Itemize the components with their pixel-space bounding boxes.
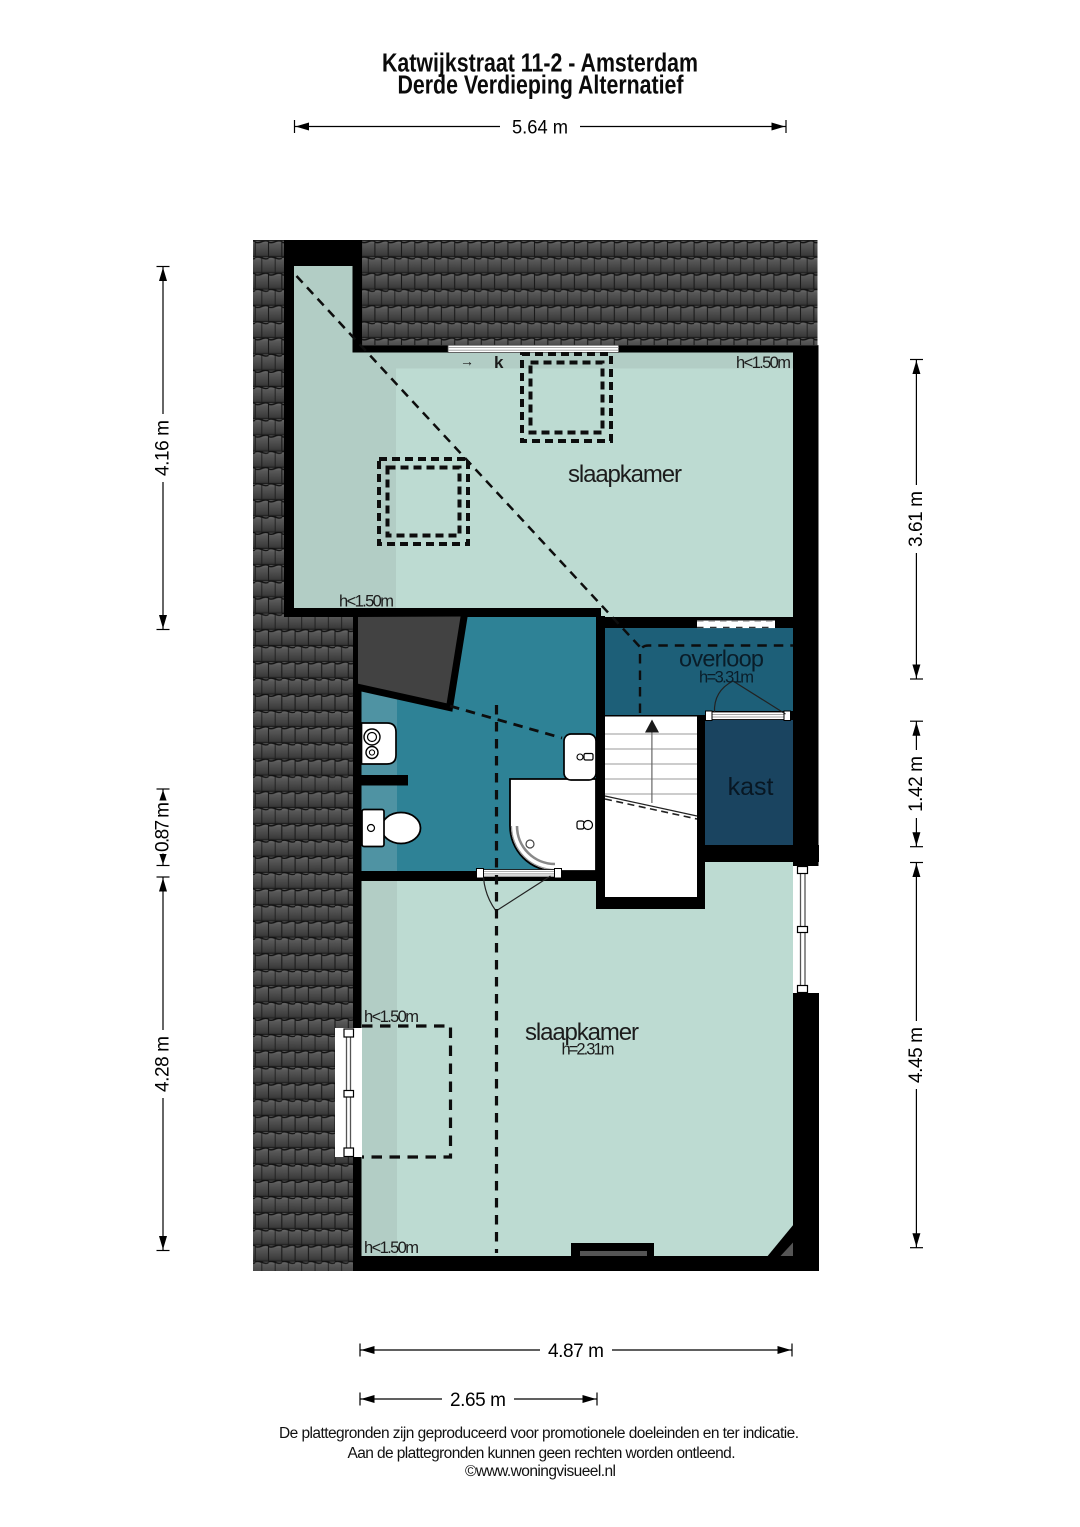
svg-text:Aan de plattegronden kunnen ge: Aan de plattegronden kunnen geen rechten…: [348, 1445, 736, 1462]
svg-text:4.45 m: 4.45 m: [906, 1027, 927, 1083]
svg-text:0.87 m: 0.87 m: [153, 802, 174, 852]
svg-text:Derde Verdieping Alternatief: Derde Verdieping Alternatief: [398, 72, 684, 100]
svg-text:©www.woningvisueel.nl: ©www.woningvisueel.nl: [465, 1463, 616, 1480]
svg-text:h=2.31m: h=2.31m: [562, 1041, 615, 1059]
svg-text:5.64 m: 5.64 m: [512, 118, 568, 139]
svg-text:h<1.50m: h<1.50m: [339, 593, 394, 611]
svg-text:k: k: [494, 353, 504, 372]
svg-text:4.16 m: 4.16 m: [153, 420, 174, 476]
svg-text:h<1.50m: h<1.50m: [736, 354, 791, 372]
svg-text:kast: kast: [728, 773, 774, 801]
svg-text:1.42 m: 1.42 m: [906, 756, 927, 812]
svg-text:h<1.50m: h<1.50m: [364, 1239, 419, 1257]
svg-text:De plattegronden zijn geproduc: De plattegronden zijn geproduceerd voor …: [279, 1425, 799, 1442]
svg-text:4.28 m: 4.28 m: [153, 1036, 174, 1092]
svg-text:h=3.31m: h=3.31m: [699, 669, 754, 687]
svg-text:4.87 m: 4.87 m: [548, 1341, 604, 1362]
svg-text:h<1.50m: h<1.50m: [364, 1008, 419, 1026]
svg-text:2.65 m: 2.65 m: [450, 1390, 506, 1411]
svg-text:→: →: [460, 353, 474, 369]
svg-text:3.61 m: 3.61 m: [906, 491, 927, 547]
svg-text:slaapkamer: slaapkamer: [568, 461, 682, 488]
